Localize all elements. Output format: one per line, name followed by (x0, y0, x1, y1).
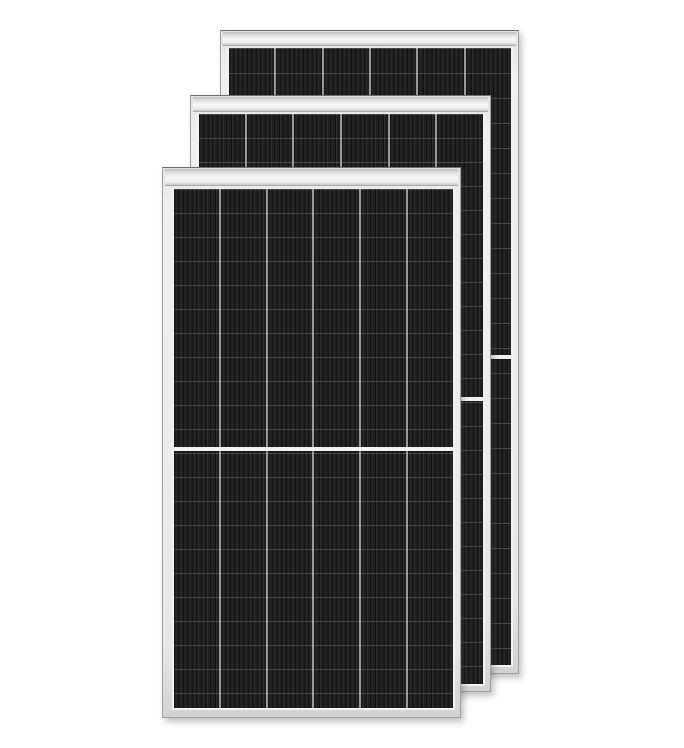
cell-column (268, 189, 313, 708)
cell-column (174, 189, 219, 708)
cell-column (361, 189, 406, 708)
panel-cell-grid (172, 189, 455, 710)
product-image-scene (0, 0, 684, 748)
cell-column (408, 189, 453, 708)
panel-top-frame-bar (223, 32, 516, 46)
cell-column (221, 189, 266, 708)
cell-column (314, 189, 359, 708)
solar-panel-front (162, 167, 461, 718)
panel-top-frame-bar (193, 97, 488, 112)
cell-columns (174, 189, 453, 708)
panel-top-frame-bar (165, 169, 458, 186)
